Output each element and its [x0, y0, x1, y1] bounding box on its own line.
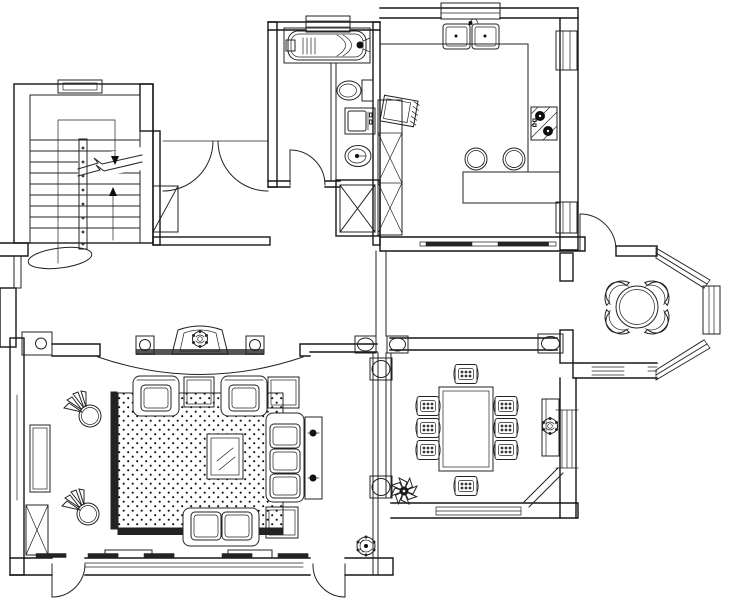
armchair-right: [221, 376, 267, 416]
shaft-box: [153, 186, 178, 232]
cooktop: [531, 107, 557, 140]
arch-arc: [98, 357, 303, 375]
dining-chair: [416, 397, 441, 416]
handrail-curved-end: [27, 244, 93, 272]
stair-right-wall-upper: [140, 84, 153, 131]
hall-wall-right-of-stairs: [153, 131, 160, 245]
beam-with-columns: [355, 334, 563, 353]
bay-window-se: [656, 340, 710, 380]
nook-top-wall: [616, 246, 657, 256]
corner-cabinet-x: [26, 505, 48, 555]
loveseat: [183, 508, 259, 546]
entrance-lobby: [357, 536, 375, 556]
nook-round-table: [616, 286, 658, 328]
living-top-wall-right: [300, 344, 377, 356]
tub-faucet-block: [286, 40, 295, 51]
nook-left-wall-upper: [560, 253, 573, 281]
kitchen-window-right-lower: [556, 202, 577, 233]
bay-window-right: [703, 286, 720, 334]
bathroom-left-wall: [268, 22, 277, 187]
tub-drain: [357, 42, 364, 49]
bathroom-partition: [331, 63, 336, 181]
wall-cabinet: [30, 425, 50, 492]
bar-stool: [503, 148, 525, 170]
bathroom-door-swing: [290, 150, 325, 185]
left-pilaster: [22, 332, 52, 355]
fan-plant-lower: [62, 489, 99, 525]
bathroom: [268, 16, 380, 245]
hall-bottom-wall: [153, 237, 270, 245]
armchair-left: [133, 376, 179, 416]
nook-left-wall-lower: [560, 330, 573, 363]
sideboard: [542, 399, 559, 456]
toilet: [337, 80, 373, 101]
kitchen-bottom-wall: [380, 237, 585, 251]
nook-chair-nw: [598, 274, 631, 307]
dark-plant: [391, 478, 417, 504]
bathtub: [284, 28, 370, 63]
dining-chair: [454, 365, 479, 384]
dining-chair: [454, 477, 479, 496]
chamfered-corner: [524, 468, 563, 507]
bar-stool: [465, 148, 487, 170]
tall-cabinet-fridge: [378, 100, 402, 235]
entry-door: [313, 564, 345, 597]
washbasin: [345, 146, 371, 167]
kitchen-window-top: [441, 3, 500, 19]
stair-direction-arrows: [58, 120, 119, 263]
dining-chair: [494, 419, 519, 438]
dining-chair: [494, 397, 519, 416]
washing-machine: [345, 108, 375, 134]
nook-chair-ne: [643, 274, 676, 307]
coffee-table: [207, 434, 243, 479]
living-room: [10, 326, 377, 575]
double-door-swing: [163, 141, 268, 191]
tv-console: [136, 326, 264, 355]
dining-room: [355, 334, 578, 575]
dining-chair: [416, 419, 441, 438]
bathroom-window-top: [306, 16, 350, 32]
living-top-wall-left: [52, 344, 100, 356]
dining-chair: [416, 441, 441, 460]
break-line: [78, 147, 142, 179]
bay-window-ne: [656, 248, 710, 288]
dining-chair: [494, 441, 519, 460]
stair-top-niche: [58, 80, 102, 93]
sideboard-plant: [543, 418, 558, 435]
fan-plant-upper: [64, 391, 101, 427]
staircase-hall: [0, 80, 270, 347]
bottom-exterior-wall: [10, 550, 393, 597]
breakfast-nook: [560, 214, 720, 380]
kitchen-window-right-upper: [556, 31, 577, 70]
nook-bottom-wall: [573, 363, 657, 378]
exterior-wall-stubs-left: [0, 243, 28, 347]
kitchen: [378, 3, 585, 251]
corridor-divider-wall: [376, 251, 386, 336]
potted-plant: [357, 536, 375, 556]
dining-bottom-wall: [391, 503, 578, 518]
bathroom-top-wall: [268, 22, 380, 30]
dining-table: [439, 387, 493, 471]
tv-plant: [193, 331, 208, 348]
french-door-left: [52, 564, 85, 597]
console-table: [305, 417, 322, 499]
bathroom-lower-wall: [268, 181, 340, 187]
island-bar-counter: [463, 172, 560, 203]
sofa-three-seat: [266, 413, 304, 502]
floor-plan-canvas: [0, 0, 740, 600]
floor-plan-drawing: [0, 0, 740, 600]
